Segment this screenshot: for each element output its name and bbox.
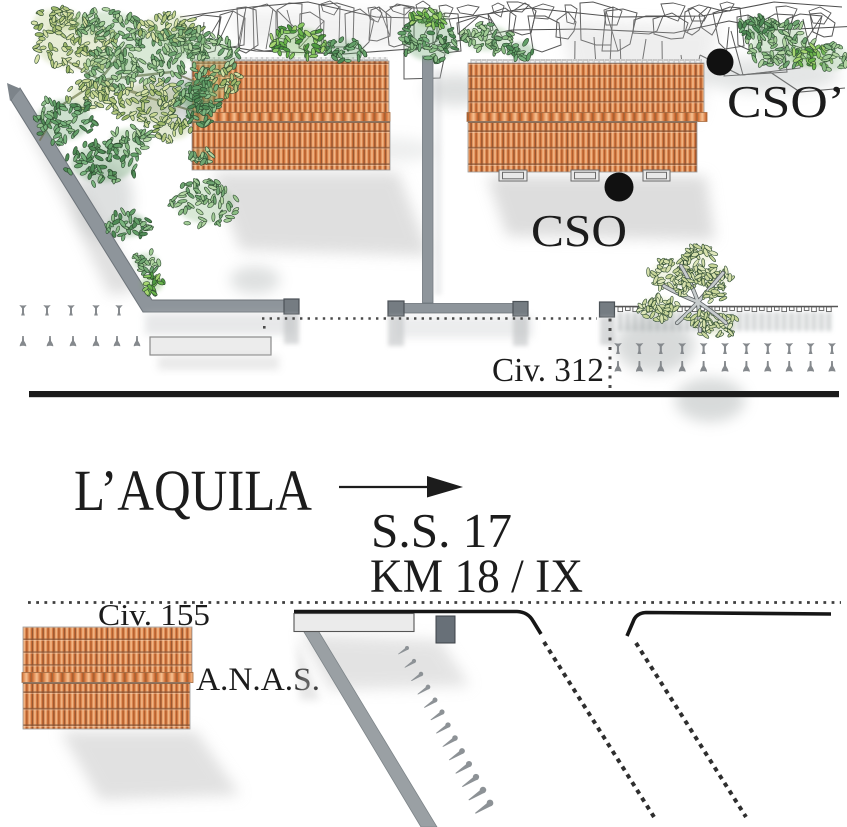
svg-text:Civ. 312: Civ. 312 [492,352,604,389]
svg-text:KM 18 / IX: KM 18 / IX [370,550,583,603]
svg-text:CSO: CSO [531,206,627,256]
svg-text:L’AQUILA: L’AQUILA [74,458,312,523]
svg-text:CSO’: CSO’ [727,76,845,127]
